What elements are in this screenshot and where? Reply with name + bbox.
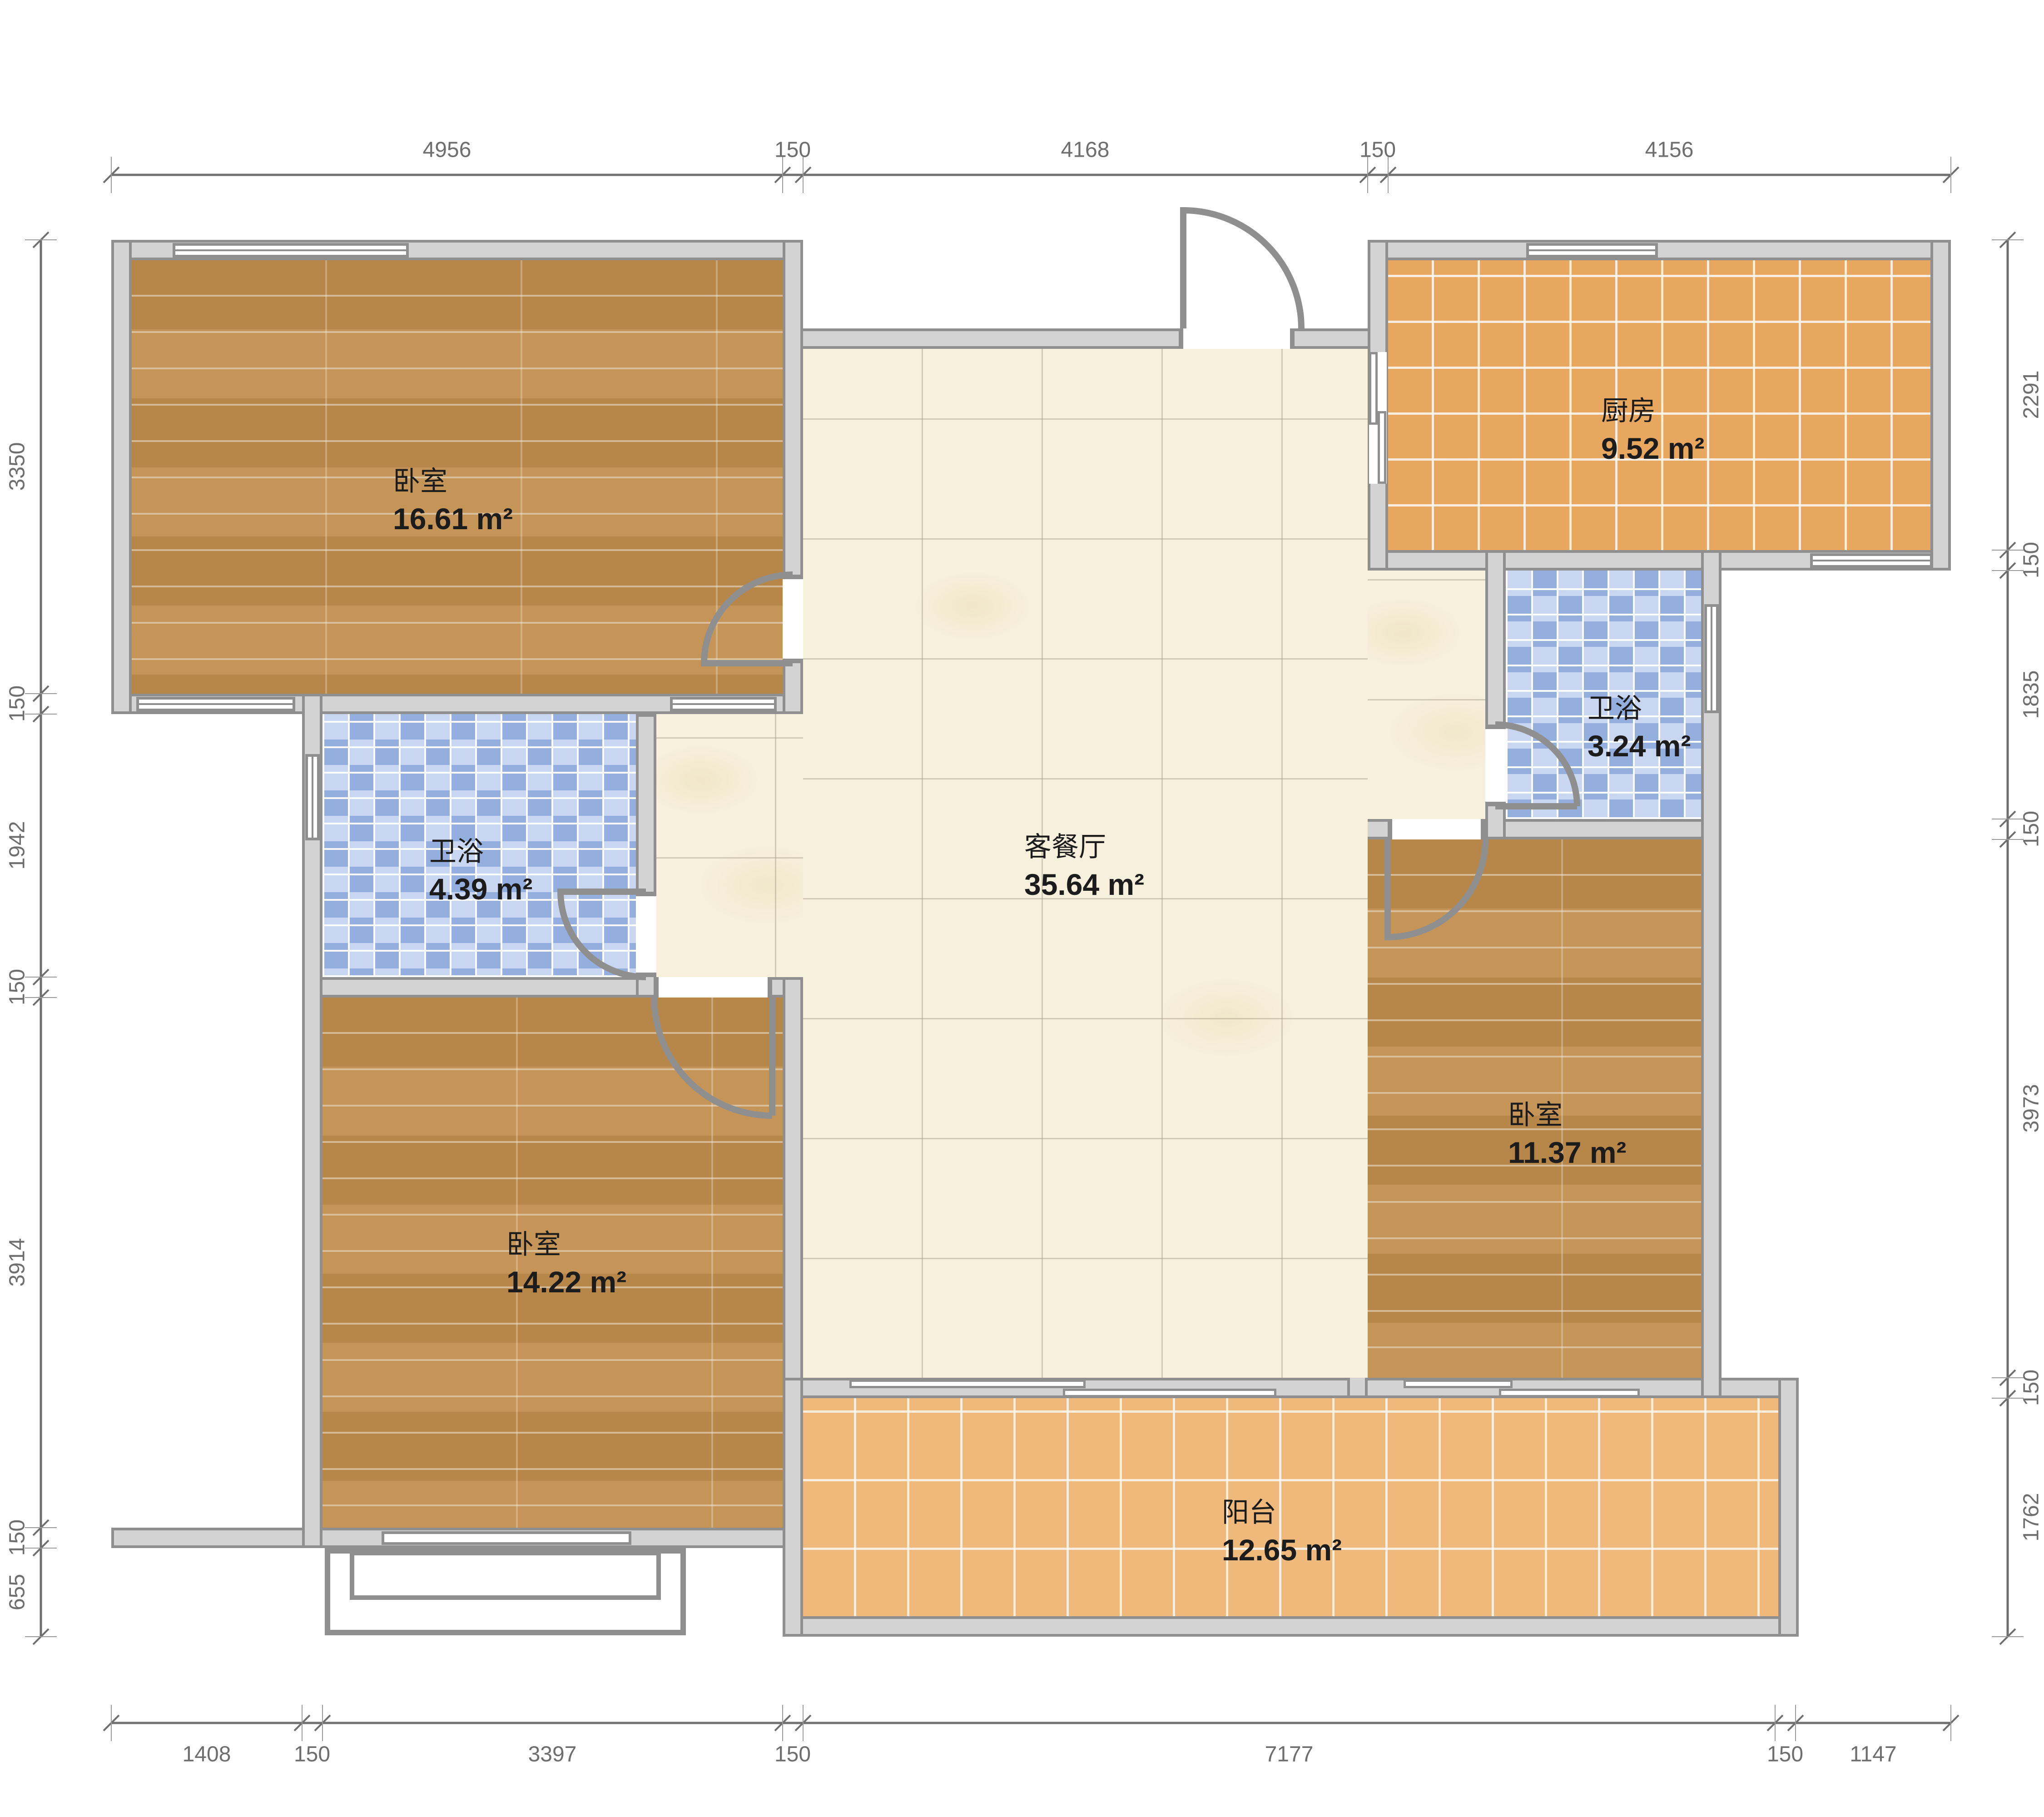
dim-label-bottom-0: 1408	[183, 1742, 231, 1767]
room-name: 卧室	[1508, 1097, 1627, 1133]
dim-label-bottom-6: 1147	[1850, 1742, 1896, 1767]
dim-label-right-0: 2291	[2019, 371, 2044, 419]
dim-label-top-0: 4956	[423, 138, 471, 163]
dim-label-top-2: 4168	[1061, 138, 1110, 163]
room-label-bedroom-right: 卧室 11.37 m²	[1508, 1097, 1627, 1172]
room-name: 卧室	[393, 463, 513, 500]
dim-label-bottom-4: 7177	[1265, 1742, 1314, 1767]
room-area: 16.61 m²	[393, 500, 513, 538]
dim-tick-extensions	[25, 157, 2024, 1741]
room-label-bath-left: 卫浴 4.39 m²	[429, 834, 532, 908]
dim-label-left-2: 1942	[5, 821, 30, 870]
dim-label-top-1: 150	[774, 138, 811, 163]
room-area: 14.22 m²	[506, 1263, 626, 1301]
floor-plan-canvas: { "rooms": { "bedroom_top_left": {"name"…	[0, 0, 2044, 1817]
dim-label-left-4: 3914	[5, 1238, 30, 1287]
room-name: 卧室	[506, 1226, 626, 1263]
dim-label-right-1: 150	[2019, 542, 2044, 578]
dim-main-lines	[41, 175, 2008, 1723]
dim-label-left-1: 150	[5, 685, 30, 722]
dim-label-bottom-2: 3397	[528, 1742, 577, 1767]
room-name: 厨房	[1601, 393, 1704, 429]
room-name: 阳台	[1222, 1494, 1342, 1531]
room-area: 4.39 m²	[429, 870, 532, 908]
dim-label-top-3: 150	[1359, 138, 1396, 163]
room-name: 卫浴	[429, 834, 532, 870]
room-label-balcony: 阳台 12.65 m²	[1222, 1494, 1342, 1569]
room-name: 客餐厅	[1024, 829, 1144, 865]
room-label-bedroom-top-left: 卧室 16.61 m²	[393, 463, 513, 538]
dim-label-left-3: 150	[5, 969, 30, 1005]
dim-label-right-3: 150	[2019, 811, 2044, 847]
dim-label-right-5: 150	[2019, 1370, 2044, 1406]
room-label-bedroom-bottom-left: 卧室 14.22 m²	[506, 1226, 626, 1301]
room-label-kitchen: 厨房 9.52 m²	[1601, 393, 1704, 467]
room-area: 3.24 m²	[1588, 727, 1691, 765]
dimension-lines	[0, 0, 2044, 1817]
dim-tick-slashes	[33, 167, 2015, 1731]
dim-label-right-6: 1762	[2019, 1493, 2044, 1542]
room-label-living-dining: 客餐厅 35.64 m²	[1024, 829, 1144, 904]
room-area: 12.65 m²	[1222, 1531, 1342, 1569]
dim-label-left-0: 3350	[5, 442, 30, 491]
room-name: 卫浴	[1588, 690, 1691, 727]
dim-label-bottom-5: 150	[1767, 1742, 1803, 1767]
room-label-bath-right: 卫浴 3.24 m²	[1588, 690, 1691, 765]
dim-label-left-5: 150	[5, 1519, 30, 1556]
dim-label-left-6: 655	[5, 1574, 30, 1610]
room-area: 35.64 m²	[1024, 865, 1144, 904]
room-area: 11.37 m²	[1508, 1133, 1627, 1172]
dim-label-right-4: 3973	[2019, 1084, 2044, 1133]
dim-label-bottom-3: 150	[774, 1742, 811, 1767]
dim-label-bottom-1: 150	[294, 1742, 330, 1767]
dim-label-top-4: 4156	[1645, 138, 1694, 163]
room-area: 9.52 m²	[1601, 429, 1704, 467]
dim-label-right-2: 1835	[2019, 670, 2044, 719]
